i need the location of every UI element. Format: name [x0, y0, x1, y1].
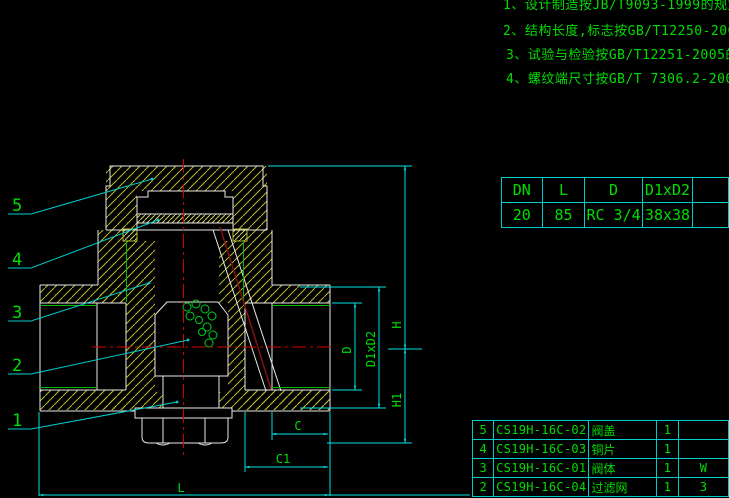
- filter-chamber: [155, 302, 228, 376]
- gasket-band: [137, 214, 233, 223]
- spec-value-row: 20 85 RC 3/4 38x38: [502, 203, 729, 228]
- part-qty: 1: [657, 478, 679, 497]
- part-name: 阀盖: [589, 421, 657, 440]
- part-code: CS19H-16C-01: [494, 459, 589, 478]
- part-no: 3: [473, 459, 494, 478]
- part-name: 阀体: [589, 459, 657, 478]
- dim-label-c: C: [294, 419, 301, 433]
- dim-label-l: L: [177, 481, 184, 495]
- spec-value-cut: [693, 203, 729, 228]
- callout-5: 5: [12, 196, 22, 216]
- part-qty: 1: [657, 459, 679, 478]
- part-material: W: [678, 459, 728, 478]
- bonnet-plug-outline: [137, 191, 233, 230]
- callout-3: 3: [12, 303, 22, 323]
- part-code: CS19H-16C-04: [494, 478, 589, 497]
- parts-row: 5 CS19H-16C-02 阀盖 1: [473, 421, 729, 440]
- spec-header-row: DN L D D1xD2: [502, 178, 729, 203]
- dim-label-h1: H1: [390, 393, 404, 407]
- part-qty: 1: [657, 421, 679, 440]
- part-code: CS19H-16C-03: [494, 440, 589, 459]
- spec-header-d: D: [585, 178, 642, 203]
- spec-header-dn: DN: [502, 178, 543, 203]
- dim-label-h: H: [390, 321, 404, 328]
- part-material: 3: [678, 478, 728, 497]
- dim-label-c1: C1: [276, 452, 290, 466]
- callout-4: 4: [12, 250, 22, 270]
- part-qty: 1: [657, 440, 679, 459]
- part-no: 5: [473, 421, 494, 440]
- spec-value-l: 85: [542, 203, 585, 228]
- parts-row: 2 CS19H-16C-04 过滤网 1 3: [473, 478, 729, 497]
- note-line-4: 4、螺纹端尺寸按GB/T 7306.2-2000的规定: [506, 68, 729, 87]
- callout-2: 2: [12, 356, 22, 376]
- part-name: 铜片: [589, 440, 657, 459]
- part-name: 过滤网: [589, 478, 657, 497]
- parts-row: 3 CS19H-16C-01 阀体 1 W: [473, 459, 729, 478]
- spec-header-d1xd2: D1xD2: [642, 178, 693, 203]
- spec-value-dn: 20: [502, 203, 543, 228]
- spec-value-d: RC 3/4: [585, 203, 642, 228]
- dim-label-d1xd2: D1xD2: [364, 331, 378, 367]
- part-material: [678, 440, 728, 459]
- note-line-1: 1、设计制造按JB/T9093-1999的规定: [503, 0, 729, 13]
- spec-value-d1xd2: 38x38: [642, 203, 693, 228]
- parts-table: 5 CS19H-16C-02 阀盖 1 4 CS19H-16C-03 铜片 1 …: [472, 420, 729, 497]
- callout-1: 1: [12, 411, 22, 431]
- part-no: 2: [473, 478, 494, 497]
- part-no: 4: [473, 440, 494, 459]
- part-code: CS19H-16C-02: [494, 421, 589, 440]
- cad-drawing-canvas: H H1 D D1xD2 C C1 L 5 4 3 2 1 1、设计制造按JB/…: [0, 0, 729, 498]
- parts-row: 4 CS19H-16C-03 铜片 1: [473, 440, 729, 459]
- note-line-3: 3、试验与检验按GB/T12251-2005的规定: [506, 44, 729, 63]
- note-line-2: 2、结构长度,标志按GB/T12250-2005的规定: [503, 20, 729, 39]
- spec-table: DN L D D1xD2 20 85 RC 3/4 38x38: [501, 177, 729, 228]
- spec-header-cut: [693, 178, 729, 203]
- part-material: [678, 421, 728, 440]
- spec-header-l: L: [542, 178, 585, 203]
- dim-label-d: D: [340, 346, 354, 353]
- packing-right: [233, 229, 247, 241]
